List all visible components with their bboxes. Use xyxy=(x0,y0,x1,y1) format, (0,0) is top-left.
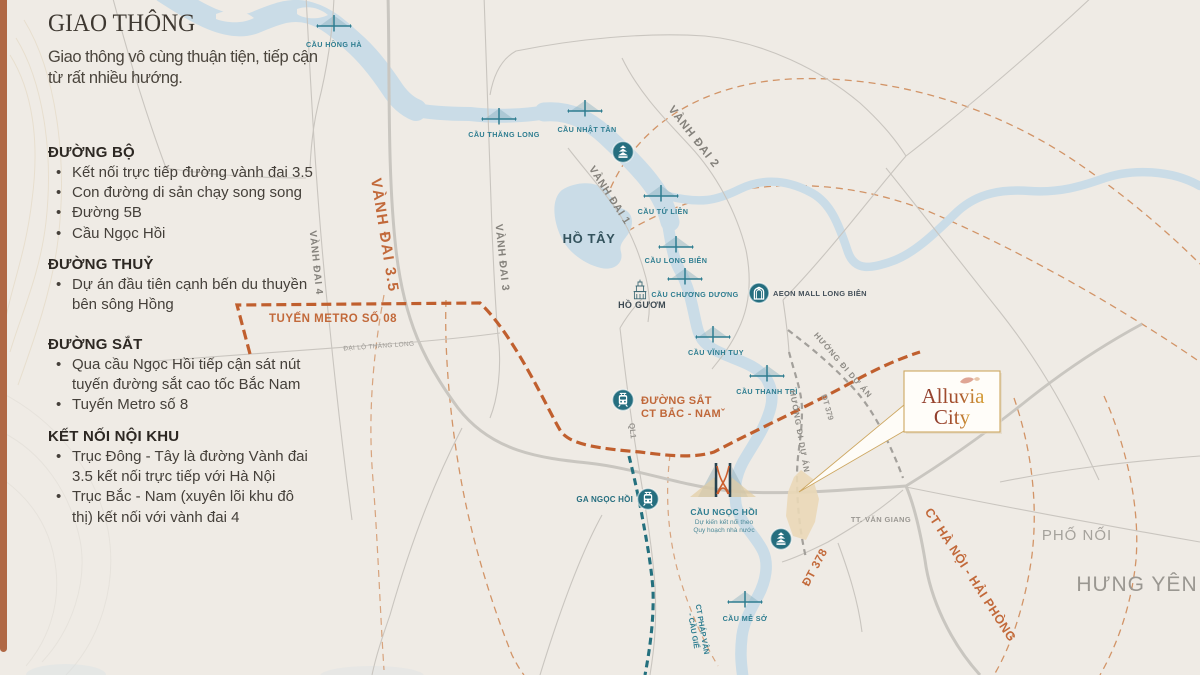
svg-text:CẦU NGỌC HỒI: CẦU NGỌC HỒI xyxy=(690,506,757,517)
svg-text:CT BẮC - NAMˇ: CT BẮC - NAMˇ xyxy=(641,407,725,420)
svg-text:City: City xyxy=(934,405,971,429)
svg-text:CẦU MỄ SỞ: CẦU MỄ SỞ xyxy=(723,613,768,623)
svg-text:AEON MALL LONG BIÊN: AEON MALL LONG BIÊN xyxy=(773,289,867,298)
svg-text:GA NGỌC HỒI: GA NGỌC HỒI xyxy=(576,494,633,504)
svg-text:CẦU CHƯƠNG DƯƠNG: CẦU CHƯƠNG DƯƠNG xyxy=(651,289,738,299)
svg-text:ĐƯỜNG SẮT: ĐƯỜNG SẮT xyxy=(641,394,712,407)
svg-text:CẦU VĨNH TUY: CẦU VĨNH TUY xyxy=(688,347,744,357)
svg-text:Dự kiến kết nối theo: Dự kiến kết nối theo xyxy=(695,517,754,526)
svg-text:TT. VĂN GIANG: TT. VĂN GIANG xyxy=(851,515,911,524)
svg-text:CẦU NHẬT TÂN: CẦU NHẬT TÂN xyxy=(557,124,616,134)
svg-text:HỒ GƯƠM: HỒ GƯƠM xyxy=(618,299,666,310)
svg-text:CẦU TỨ LIÊN: CẦU TỨ LIÊN xyxy=(638,206,689,216)
svg-text:QL1: QL1 xyxy=(627,423,638,440)
svg-text:CẦU THĂNG LONG: CẦU THĂNG LONG xyxy=(468,129,539,139)
svg-text:HƯNG YÊN: HƯNG YÊN xyxy=(1076,573,1197,596)
svg-text:HỒ TÂY: HỒ TÂY xyxy=(563,231,616,246)
svg-text:CẦU LONG BIÊN: CẦU LONG BIÊN xyxy=(645,255,708,265)
svg-text:PHỐ NỐI: PHỐ NỐI xyxy=(1042,526,1112,544)
svg-text:Quy hoạch nhà nước: Quy hoạch nhà nước xyxy=(693,527,755,534)
